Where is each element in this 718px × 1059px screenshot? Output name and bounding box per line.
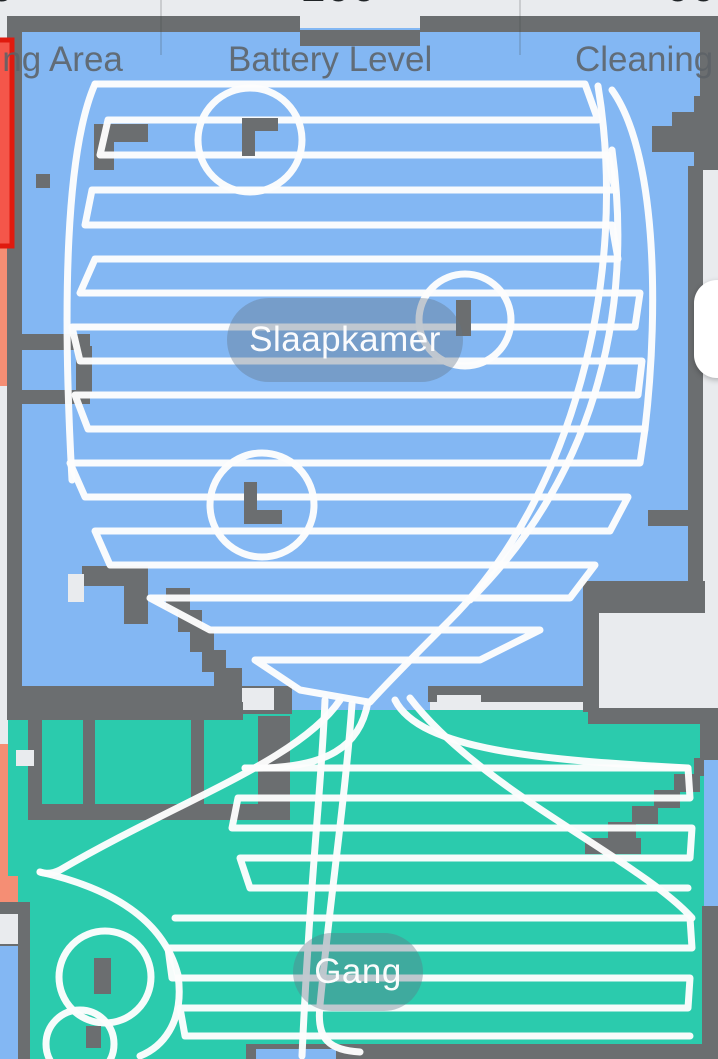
cleaning-map-canvas[interactable]: [0, 0, 718, 1059]
cleaning-time-label: Cleaning Time: [575, 40, 718, 80]
room-label-gang[interactable]: Gang: [293, 933, 423, 1011]
room-label-slaapkamer-text: Slaapkamer: [249, 320, 441, 360]
cleaning-area-label: Cleaning Area: [0, 40, 123, 80]
room-label-slaapkamer[interactable]: Slaapkamer: [227, 298, 463, 382]
battery-level-value: 100: [300, 0, 377, 8]
room-label-gang-text: Gang: [314, 952, 402, 992]
cleaning-time-value: 00: [665, 0, 716, 8]
map-background-pockets: [595, 603, 703, 713]
header-divider-left: [160, 0, 162, 55]
vacuum-map-screen: Slaapkamer Gang 6 100 00 Cleaning Area B…: [0, 0, 718, 1059]
map-control-button[interactable]: [694, 280, 718, 378]
cleaning-area-value: 6: [0, 0, 14, 8]
header-divider-right: [519, 0, 521, 55]
battery-level-label: Battery Level: [228, 40, 432, 80]
